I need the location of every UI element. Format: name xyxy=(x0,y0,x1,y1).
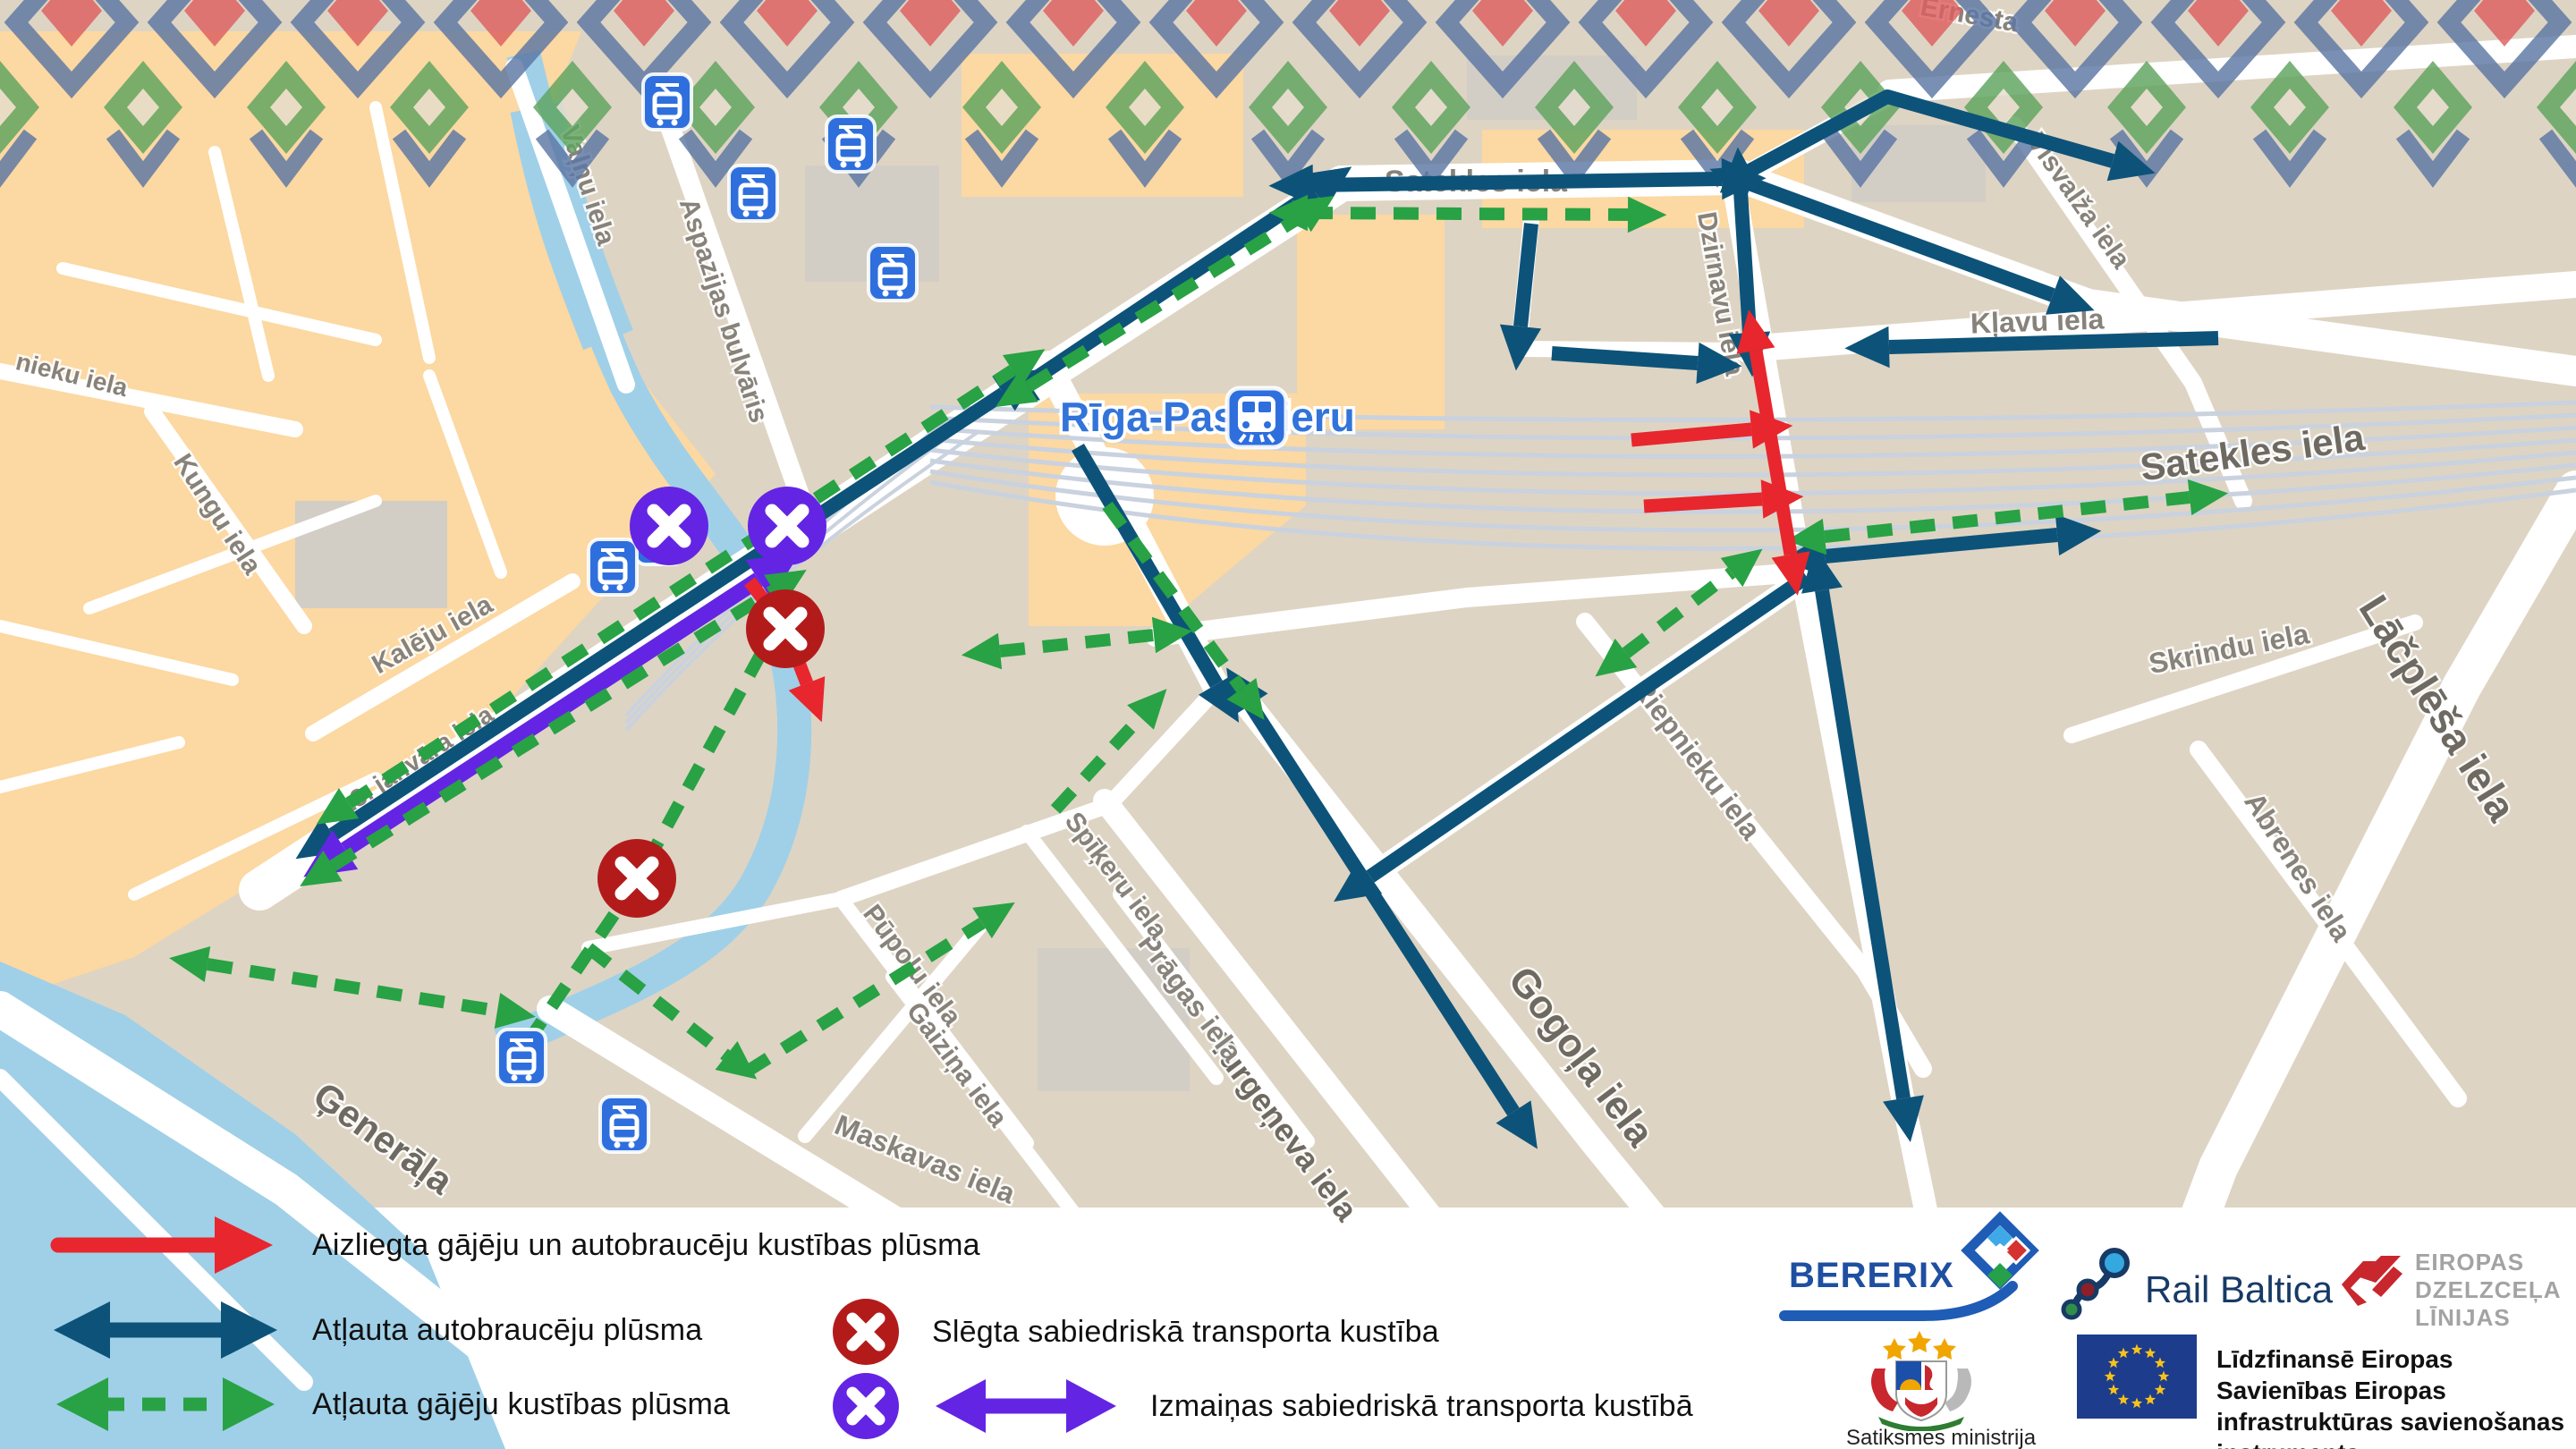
legend-label: Izmaiņas sabiedriskā transporta kustībā xyxy=(1150,1389,1693,1424)
eu-funding-line2: infrastruktūras savienošanas instruments xyxy=(2216,1406,2576,1449)
close-x-icon xyxy=(630,487,708,565)
prohibited-arrow-sample xyxy=(49,1214,282,1276)
latvia-coat-of-arms xyxy=(1843,1324,2004,1431)
legend-label: Slēgta sabiedriskā transporta kustība xyxy=(932,1315,1439,1350)
tram-icon[interactable] xyxy=(589,539,637,595)
bererix-diamond-icon xyxy=(1775,1207,2080,1333)
close-x-icon xyxy=(748,487,826,565)
rail-baltica-logo-text: Rail Baltica xyxy=(2145,1268,2333,1311)
eu-railway-lines-text: EIROPAS DZELZCEĻA LĪNIJAS xyxy=(2415,1249,2562,1332)
legend-item-prohibited: Aizliegta gājēju un autobraucēju kustība… xyxy=(49,1214,980,1276)
rail-baltica-icon xyxy=(2057,1243,2138,1324)
close-x-icon xyxy=(597,839,676,918)
changed-stop-sample close-x-icon xyxy=(830,1370,902,1442)
tram-icon[interactable] xyxy=(869,245,917,301)
close-x-icon xyxy=(746,589,825,668)
legend-label: Atļauta autobraucēju plūsma xyxy=(312,1313,702,1348)
eu-funding-text: Līdzfinansē Eiropas Savienības Eiropas i… xyxy=(2216,1343,2576,1449)
tram-icon[interactable] xyxy=(600,1097,648,1152)
eu-flag-icon xyxy=(2077,1335,2197,1419)
legend-item-cars: Atļauta autobraucēju plūsma xyxy=(49,1299,702,1361)
transit-change-arrow-sample xyxy=(932,1375,1120,1437)
legend-label: Atļauta gājēju kustības plūsma xyxy=(312,1387,730,1422)
eu-railway-lines-icon xyxy=(2336,1250,2408,1313)
edzl-line3: LĪNIJAS xyxy=(2415,1304,2562,1332)
traffic-scheme-page: Vaļņu ielaAspazijas bulvārisnieku ielaKu… xyxy=(0,0,2576,1449)
tram-icon[interactable] xyxy=(643,74,691,130)
station-name: Rīga-Pasažieru xyxy=(1060,394,1355,440)
edzl-line2: DZELZCEĻA xyxy=(2415,1276,2562,1304)
edzl-line1: EIROPAS xyxy=(2415,1249,2562,1276)
tram-icon[interactable] xyxy=(826,116,875,172)
decorative-diamond-band xyxy=(0,0,2576,192)
train-station-icon[interactable] xyxy=(1227,388,1286,447)
closed-stop-sample close-x-icon xyxy=(830,1296,902,1368)
legend-item-transit-changed: Izmaiņas sabiedriskā transporta kustībā xyxy=(830,1370,1693,1442)
legend-item-pedestrians: Atļauta gājēju kustības plūsma xyxy=(49,1373,730,1436)
legend-item-transit-closed: Slēgta sabiedriskā transporta kustība xyxy=(830,1296,1439,1368)
pedestrian-arrow-sample xyxy=(49,1373,282,1436)
tram-icon[interactable] xyxy=(497,1030,546,1085)
eu-funding-line1: Līdzfinansē Eiropas Savienības Eiropas xyxy=(2216,1343,2576,1406)
tram-icon[interactable] xyxy=(729,165,777,221)
station-label-group[interactable]: Rīga-Pasažieru xyxy=(1060,388,1355,447)
legend-label: Aizliegta gājēju un autobraucēju kustība… xyxy=(312,1228,980,1263)
car-arrow-sample xyxy=(49,1299,282,1361)
ministry-label: Satiksmes ministrija xyxy=(1846,1426,2036,1449)
